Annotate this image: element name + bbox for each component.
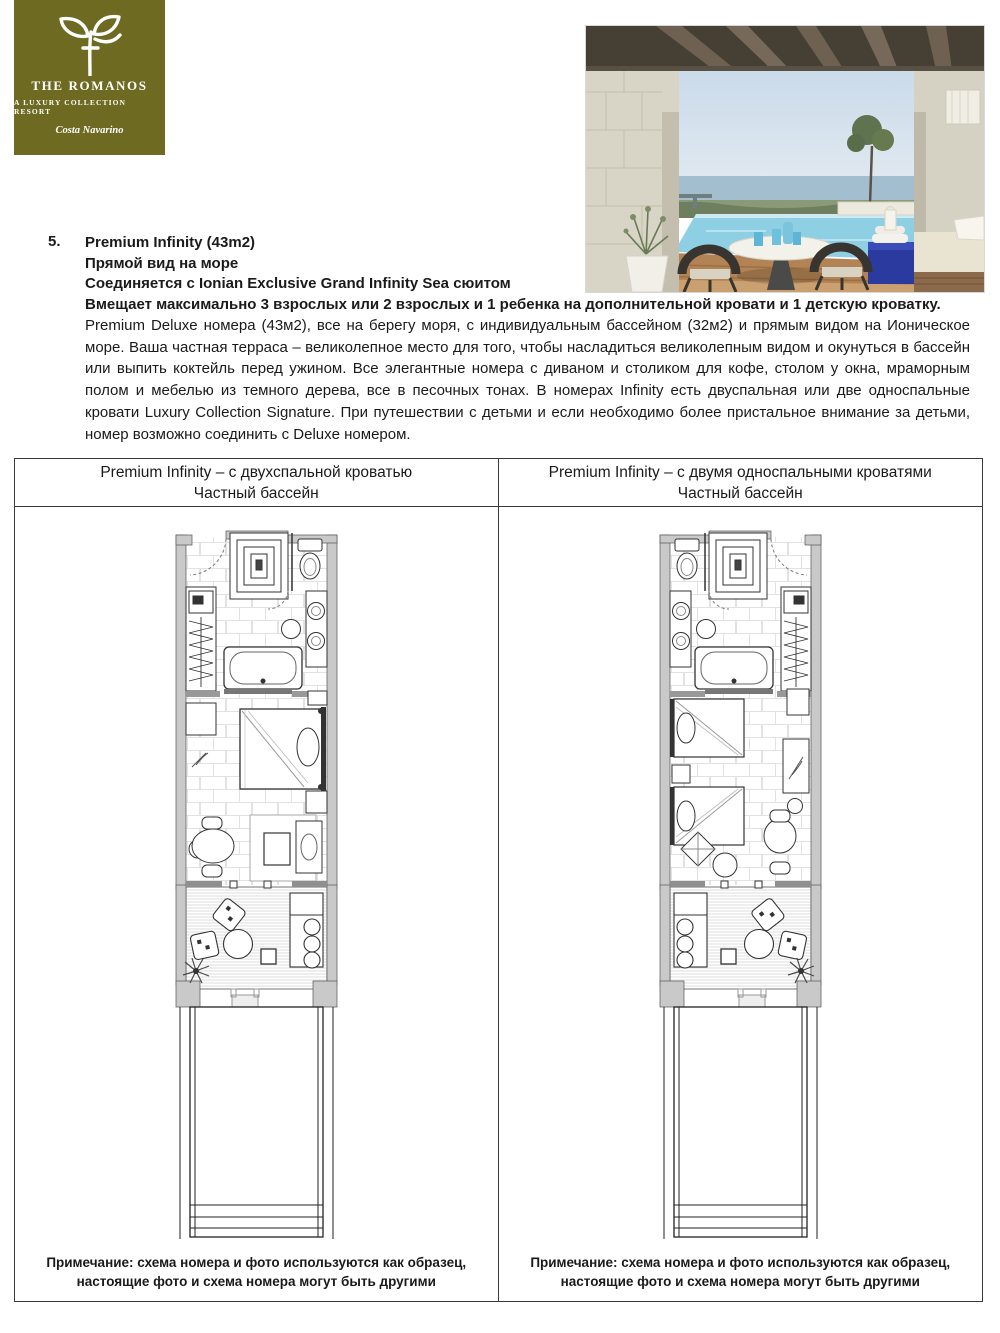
floor-plan-table: Premium Infinity – с двухспальной кроват… bbox=[14, 458, 983, 1302]
private-pool bbox=[180, 989, 333, 1239]
connects-line: Соединяется с Ionian Exclusive Grand Inf… bbox=[85, 274, 970, 295]
private-pool bbox=[664, 989, 817, 1239]
note-line1: Примечание: схема номера и фото использу… bbox=[21, 1253, 491, 1272]
header-line2: Частный бассейн bbox=[678, 483, 803, 504]
column-header-double-bed: Premium Infinity – с двухспальной кроват… bbox=[15, 459, 499, 507]
plan-cell-twin-beds: Примечание: схема номера и фото использу… bbox=[499, 507, 983, 1301]
list-number: 5. bbox=[48, 233, 61, 250]
floor-plan-twin-beds bbox=[658, 529, 823, 1241]
disclaimer-note: Примечание: схема номера и фото использу… bbox=[21, 1253, 491, 1291]
header-line1: Premium Infinity – с двухспальной кроват… bbox=[100, 462, 412, 483]
capacity-line: Вмещает максимально 3 взрослых или 2 взр… bbox=[85, 295, 970, 316]
description-paragraph: Premium Deluxe номера (43м2), все на бер… bbox=[85, 315, 970, 445]
olive-branch-icon bbox=[50, 14, 130, 76]
logo-title: THE ROMANOS bbox=[31, 78, 147, 94]
view-line: Прямой вид на море bbox=[85, 254, 970, 275]
note-line2: настоящие фото и схема номера могут быть… bbox=[21, 1272, 491, 1291]
room-title: Premium Infinity (43m2) bbox=[85, 233, 970, 254]
resort-logo: THE ROMANOS A LUXURY COLLECTION RESORT C… bbox=[14, 0, 165, 155]
note-line2: настоящие фото и схема номера могут быть… bbox=[505, 1272, 975, 1291]
logo-subtitle: A LUXURY COLLECTION RESORT bbox=[14, 98, 165, 116]
header-line2: Частный бассейн bbox=[194, 483, 319, 504]
plan-cell-double-bed: Примечание: схема номера и фото использу… bbox=[15, 507, 499, 1301]
disclaimer-note: Примечание: схема номера и фото использу… bbox=[505, 1253, 975, 1291]
room-description-section: 5. Premium Infinity (43m2) Прямой вид на… bbox=[48, 233, 970, 445]
logo-location: Costa Navarino bbox=[56, 125, 124, 136]
column-header-twin-beds: Premium Infinity – с двумя односпальными… bbox=[499, 459, 983, 507]
note-line1: Примечание: схема номера и фото использу… bbox=[505, 1253, 975, 1272]
floor-plan-double-bed bbox=[174, 529, 339, 1241]
header-line1: Premium Infinity – с двумя односпальными… bbox=[549, 462, 932, 483]
